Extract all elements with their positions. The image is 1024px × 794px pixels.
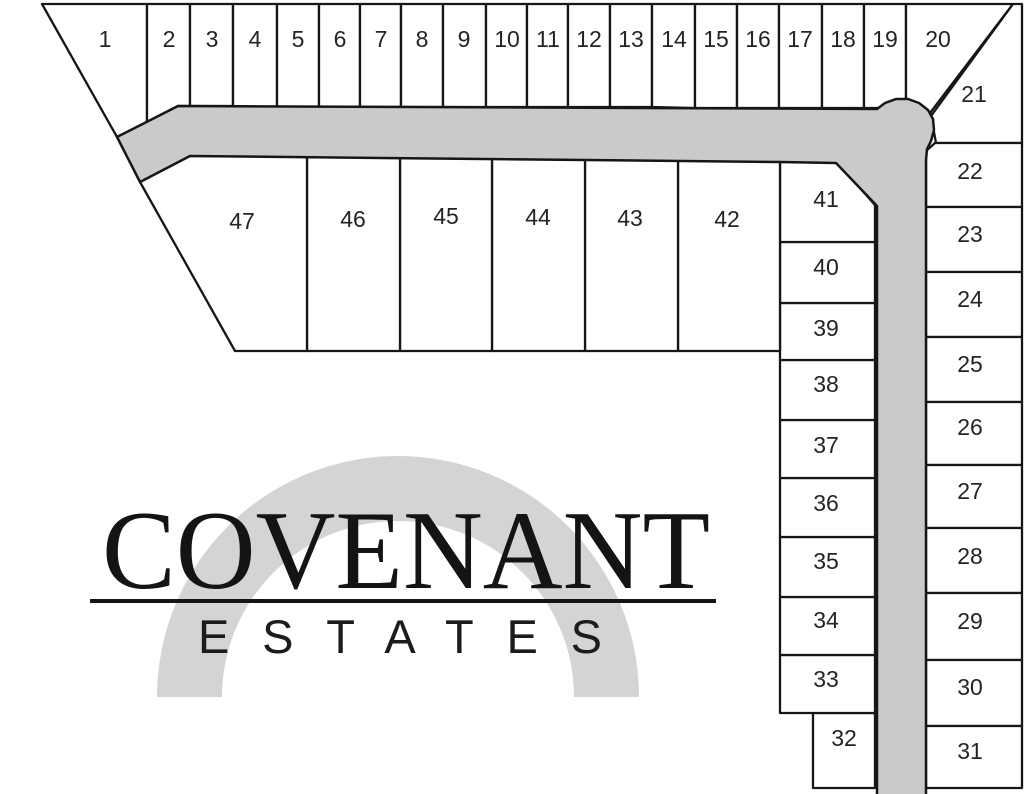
- plat-map-page: COVENANT ESTATES 12345678910111213141516…: [0, 0, 1024, 794]
- lot-label-24: 24: [957, 286, 983, 312]
- lot-13: [610, 4, 652, 107]
- lot-label-1: 1: [99, 26, 112, 52]
- lot-46: [307, 156, 400, 351]
- lot-label-7: 7: [375, 26, 388, 52]
- lot-label-16: 16: [745, 26, 771, 52]
- lot-9: [443, 4, 486, 107]
- lot-label-28: 28: [957, 543, 983, 569]
- lot-label-17: 17: [787, 26, 813, 52]
- lot-2: [147, 4, 190, 122]
- lot-label-47: 47: [229, 208, 255, 234]
- lot-19: [864, 4, 906, 108]
- lot-label-40: 40: [813, 254, 839, 280]
- lot-45: [400, 157, 492, 351]
- lot-12: [568, 4, 610, 107]
- lot-label-21: 21: [961, 81, 987, 107]
- lot-label-25: 25: [957, 351, 983, 377]
- logo-subtitle: ESTATES: [198, 610, 602, 663]
- lot-8: [401, 4, 443, 107]
- lot-label-19: 19: [872, 26, 898, 52]
- lot-label-26: 26: [957, 414, 983, 440]
- lot-label-13: 13: [618, 26, 644, 52]
- lot-label-15: 15: [703, 26, 729, 52]
- lot-label-29: 29: [957, 608, 983, 634]
- lot-label-4: 4: [249, 26, 262, 52]
- lot-47: [140, 155, 307, 351]
- lot-label-18: 18: [830, 26, 856, 52]
- lot-label-3: 3: [206, 26, 219, 52]
- lot-label-30: 30: [957, 674, 983, 700]
- lot-label-12: 12: [576, 26, 602, 52]
- lot-label-37: 37: [813, 432, 839, 458]
- lot-15: [695, 4, 737, 108]
- lot-label-32: 32: [831, 725, 857, 751]
- lot-label-14: 14: [661, 26, 687, 52]
- lot-label-44: 44: [525, 204, 551, 230]
- lot-label-6: 6: [334, 26, 347, 52]
- lot-label-5: 5: [292, 26, 305, 52]
- lot-label-36: 36: [813, 490, 839, 516]
- lot-label-35: 35: [813, 548, 839, 574]
- lot-42: [678, 160, 780, 351]
- lot-16: [737, 4, 779, 108]
- lot-14: [652, 4, 695, 108]
- lot-4: [233, 4, 277, 107]
- lot-label-42: 42: [714, 206, 740, 232]
- lot-label-11: 11: [536, 26, 560, 52]
- lot-7: [360, 4, 401, 107]
- lot-label-31: 31: [957, 738, 983, 764]
- lot-label-20: 20: [925, 26, 951, 52]
- lot-11: [527, 4, 568, 107]
- logo-title: COVENANT: [102, 489, 710, 613]
- lot-10: [486, 4, 527, 107]
- lot-1: [42, 4, 147, 137]
- plat-map-svg: COVENANT ESTATES 12345678910111213141516…: [0, 0, 1024, 794]
- lot-label-38: 38: [813, 371, 839, 397]
- lot-44: [492, 158, 585, 351]
- lot-label-43: 43: [617, 205, 643, 231]
- lot-18: [822, 4, 864, 108]
- lot-label-2: 2: [163, 26, 176, 52]
- lot-43: [585, 159, 678, 351]
- lot-17: [779, 4, 822, 108]
- lot-5: [277, 4, 319, 107]
- lot-6: [319, 4, 360, 107]
- lot-label-46: 46: [340, 206, 366, 232]
- lot-label-39: 39: [813, 315, 839, 341]
- lot-label-33: 33: [813, 666, 839, 692]
- lot-label-8: 8: [416, 26, 429, 52]
- lot-label-45: 45: [433, 203, 459, 229]
- lot-label-23: 23: [957, 221, 983, 247]
- lot-3: [190, 4, 233, 106]
- lot-label-27: 27: [957, 478, 983, 504]
- lot-label-10: 10: [494, 26, 520, 52]
- lot-label-34: 34: [813, 607, 839, 633]
- lot-label-41: 41: [813, 186, 839, 212]
- lot-label-22: 22: [957, 158, 983, 184]
- lot-label-9: 9: [458, 26, 471, 52]
